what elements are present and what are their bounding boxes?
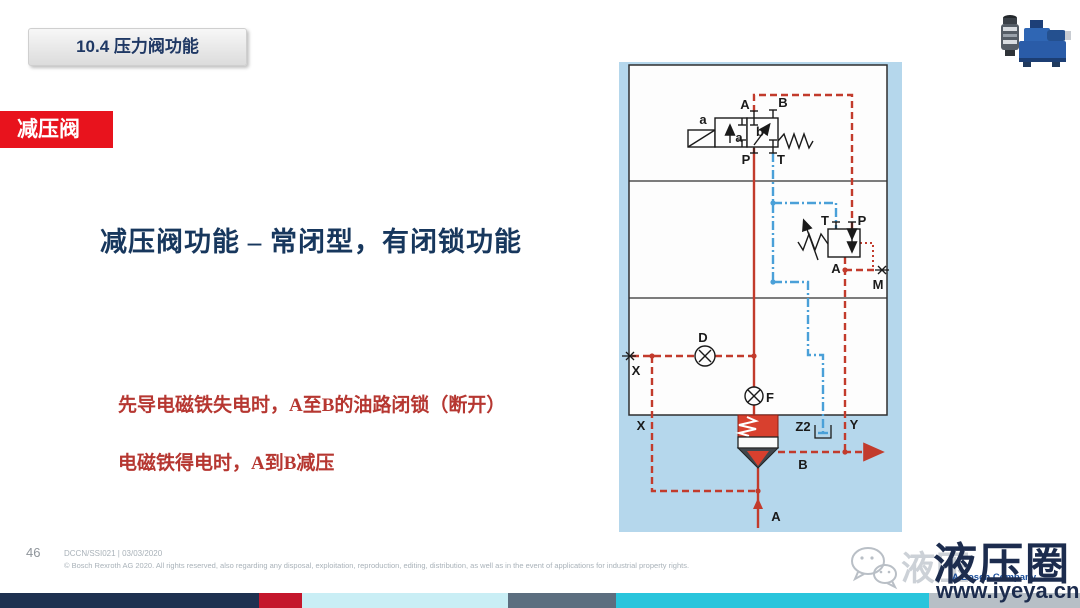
footer-copyright: © Bosch Rexroth AG 2020. All rights rese… (64, 561, 864, 570)
svg-text:a: a (699, 112, 707, 127)
page-title: 减压阀功能 – 常闭型，有闭锁功能 (100, 220, 620, 259)
svg-text:A: A (771, 509, 781, 524)
svg-text:P: P (858, 213, 867, 228)
stripe-segment (0, 593, 259, 608)
hydraulic-diagram: a a b A B P T T P A M D F X X Z2 Y B A (619, 62, 902, 532)
slide: { "slide": { "section_badge": "10.4 压力阀功… (0, 0, 1080, 608)
hydraulic-circuit-svg: a a b A B P T T P A M D F X X Z2 Y B A (619, 62, 902, 532)
svg-text:X: X (637, 418, 646, 433)
svg-text:B: B (798, 457, 807, 472)
svg-text:D: D (698, 330, 707, 345)
product-photo (992, 8, 1074, 68)
svg-text:a: a (735, 130, 743, 145)
svg-text:T: T (821, 213, 829, 228)
bottom-stripe (0, 593, 1080, 608)
bullet-energized: 电磁铁得电时，A到B减压 (118, 448, 638, 475)
stripe-segment (616, 593, 929, 608)
section-badge: 10.4 压力阀功能 (28, 28, 247, 66)
svg-text:X: X (632, 363, 641, 378)
wechat-icon (848, 543, 900, 591)
valve-product-image (992, 8, 1074, 68)
svg-text:T: T (777, 152, 785, 167)
stripe-segment (259, 593, 302, 608)
svg-text:M: M (873, 277, 884, 292)
svg-text:B: B (778, 95, 787, 110)
bullet-deenergized: 先导电磁铁失电时，A至B的油路闭锁（断开） (118, 390, 638, 417)
svg-text:Z2: Z2 (795, 419, 810, 434)
svg-text:P: P (742, 152, 751, 167)
stripe-segment (302, 593, 508, 608)
page-number: 46 (26, 545, 40, 560)
footer-doc-id: DCCN/SSI021 | 03/03/2020 (64, 549, 162, 558)
svg-text:A: A (831, 261, 841, 276)
svg-text:A: A (740, 97, 750, 112)
watermark-url: www.iyeya.cn (936, 578, 1079, 604)
topic-badge: 减压阀 (0, 111, 113, 148)
svg-text:F: F (766, 390, 774, 405)
stripe-segment (508, 593, 616, 608)
svg-text:Y: Y (850, 417, 859, 432)
svg-text:b: b (756, 124, 764, 139)
